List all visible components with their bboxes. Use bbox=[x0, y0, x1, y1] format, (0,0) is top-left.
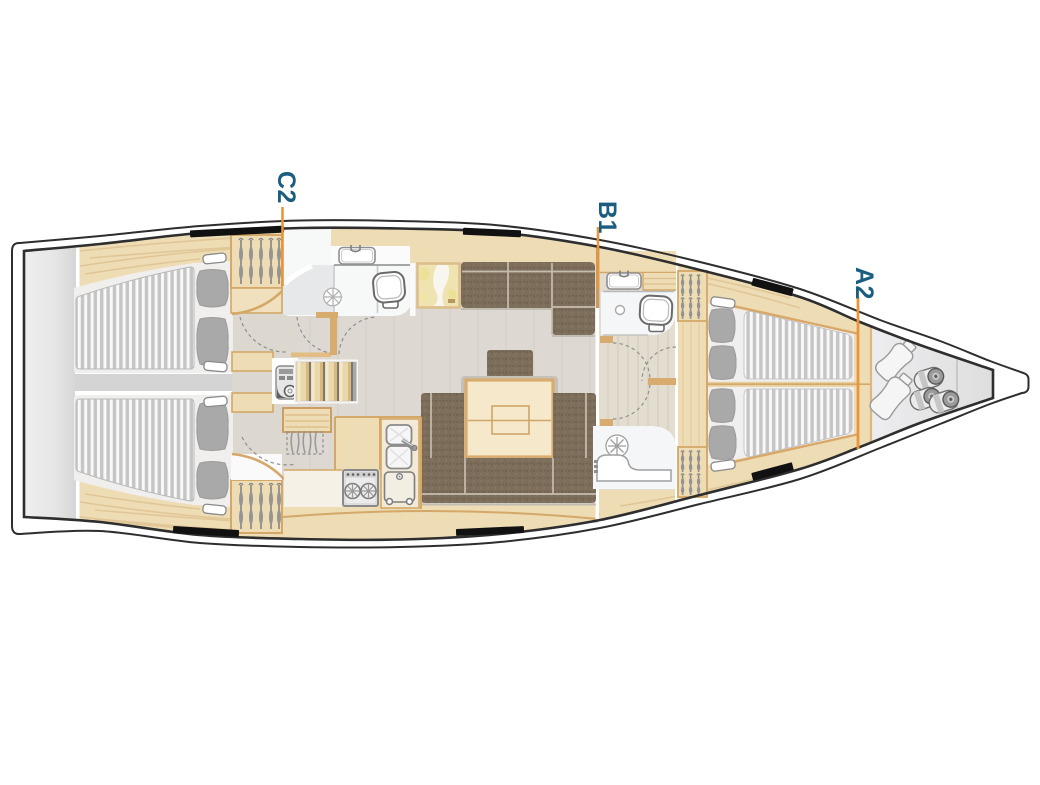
svg-text:B1: B1 bbox=[593, 201, 621, 234]
svg-text:C2: C2 bbox=[272, 171, 300, 204]
svg-text:A2: A2 bbox=[850, 267, 878, 300]
